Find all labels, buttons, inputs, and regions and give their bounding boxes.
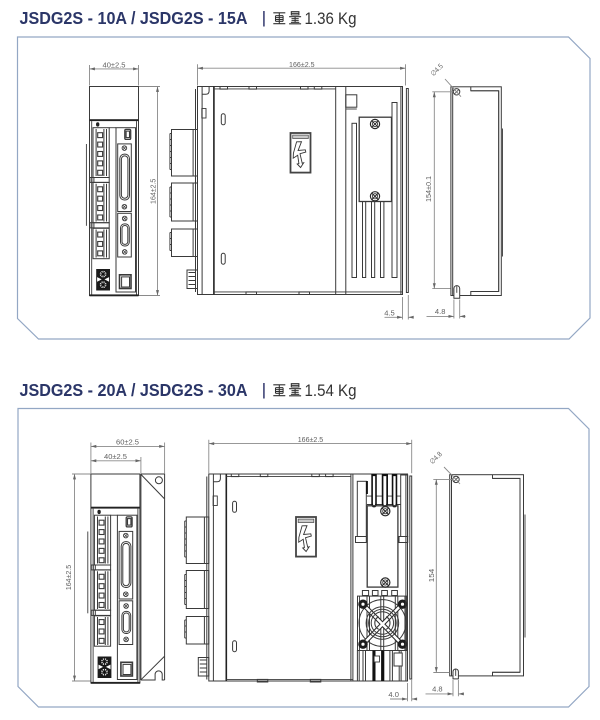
svg-text:1.54 Kg: 1.54 Kg [305,382,357,400]
svg-text:4.8: 4.8 [435,307,446,316]
svg-text:164±2.5: 164±2.5 [64,565,73,590]
svg-text:∅4.8: ∅4.8 [428,450,444,466]
svg-text:4.5: 4.5 [384,308,395,317]
svg-text:4.8: 4.8 [432,685,443,694]
svg-text:40±2.5: 40±2.5 [103,60,126,69]
svg-text:60±2.5: 60±2.5 [116,438,139,447]
svg-text:154±0.1: 154±0.1 [424,176,433,202]
svg-text:164±2.5: 164±2.5 [149,179,158,204]
svg-text:1.36 Kg: 1.36 Kg [305,10,357,28]
svg-text:4.0: 4.0 [388,690,399,699]
svg-text:∅4.5: ∅4.5 [429,62,445,78]
svg-text:166±2.5: 166±2.5 [289,60,315,69]
svg-text:166±2.5: 166±2.5 [298,435,324,444]
svg-text:154: 154 [427,569,436,583]
svg-text:40±2.5: 40±2.5 [104,452,127,461]
svg-text:JSDG2S - 10A / JSDG2S - 15A: JSDG2S - 10A / JSDG2S - 15A [20,8,248,28]
svg-text:JSDG2S - 20A / JSDG2S - 30A: JSDG2S - 20A / JSDG2S - 30A [20,380,248,400]
